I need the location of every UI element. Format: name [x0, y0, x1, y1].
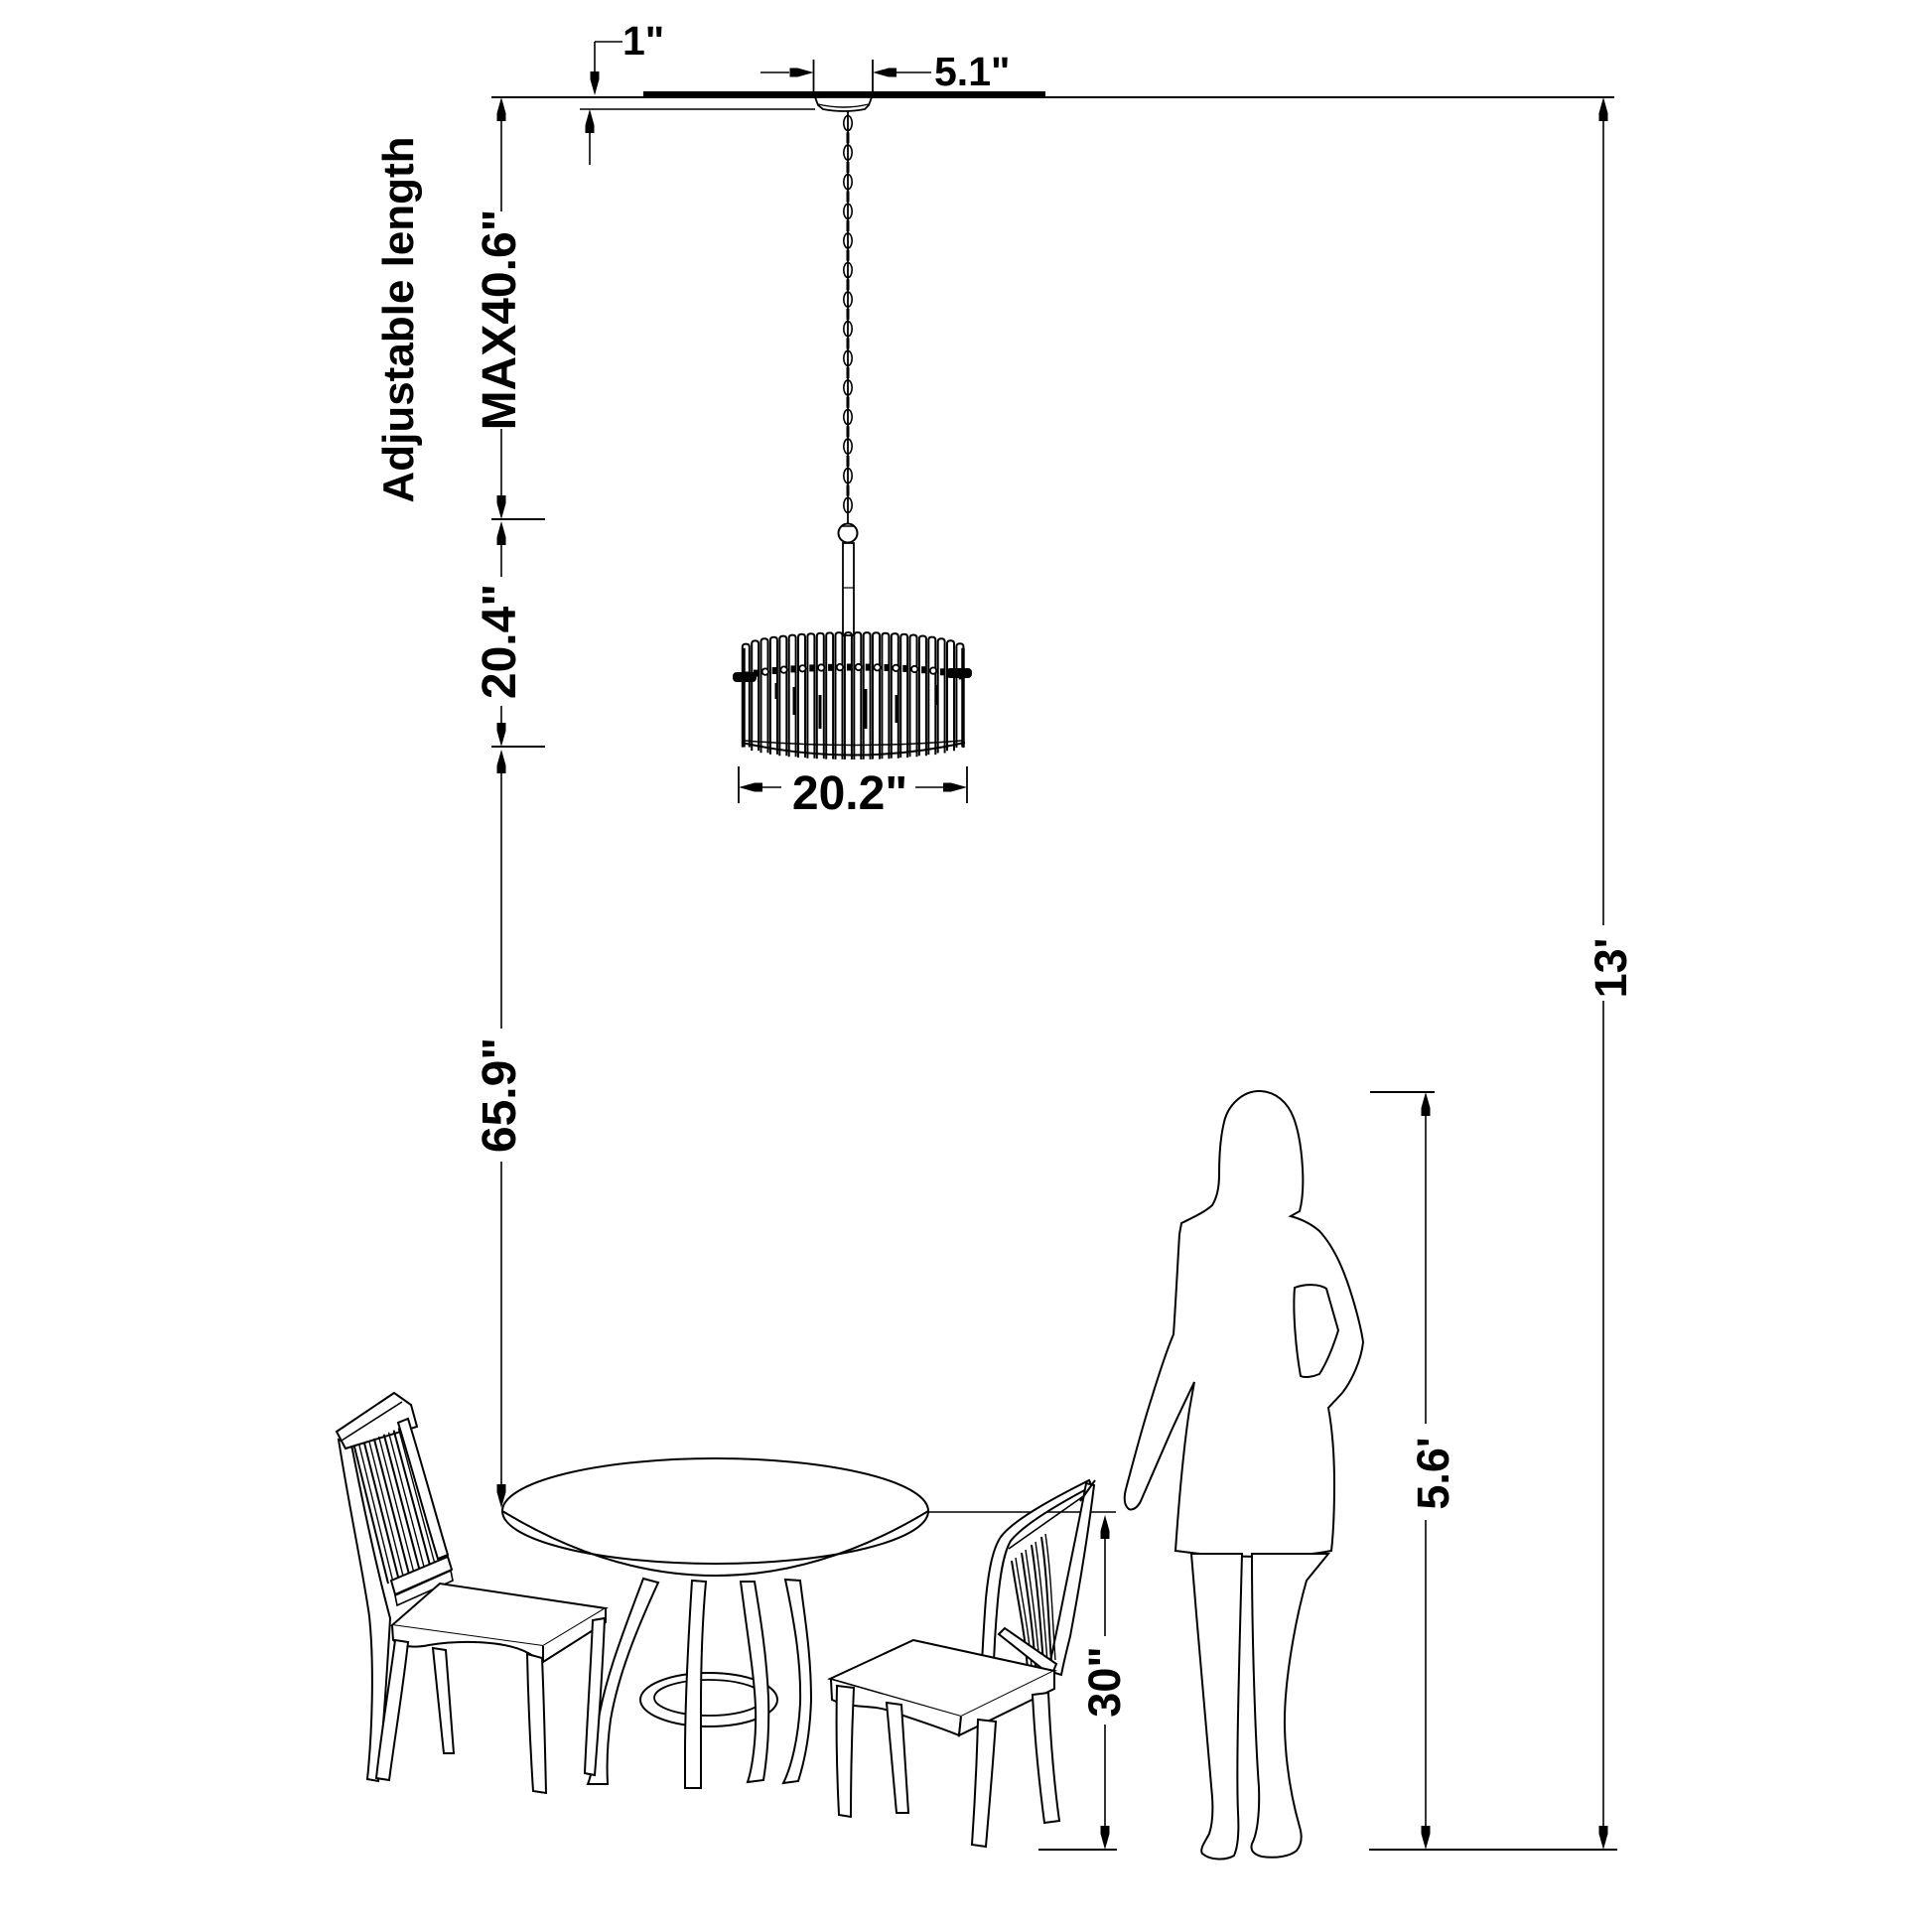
- svg-text:MAX40.6": MAX40.6": [474, 209, 526, 431]
- svg-text:20.4": 20.4": [474, 584, 526, 699]
- svg-text:30": 30": [1079, 1646, 1130, 1717]
- svg-text:13': 13': [1586, 938, 1636, 999]
- svg-text:5.1": 5.1": [934, 49, 1010, 94]
- svg-text:1": 1": [622, 18, 664, 64]
- svg-text:5.6': 5.6': [1408, 1437, 1458, 1509]
- svg-text:Adjustable length: Adjustable length: [374, 136, 423, 502]
- svg-text:65.9": 65.9": [474, 1037, 526, 1153]
- svg-text:20.2": 20.2": [792, 767, 907, 820]
